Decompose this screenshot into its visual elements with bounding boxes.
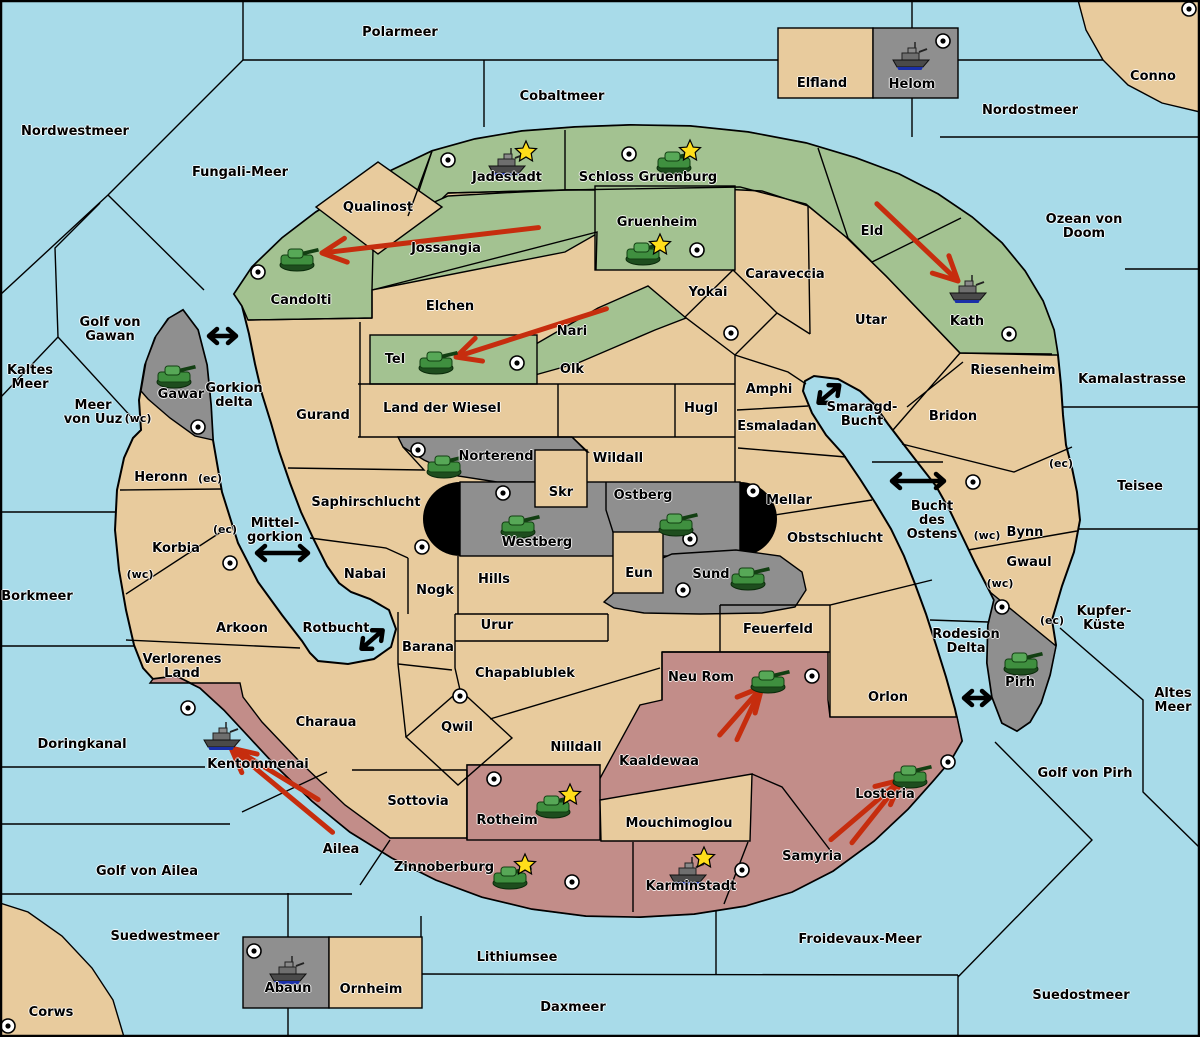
territory-label-esmaladan[interactable]: Esmaladan (737, 420, 817, 434)
map-canvas (0, 0, 1200, 1037)
coast-mark-ec-bynn-north: (ec) (1049, 458, 1073, 470)
territory-label-sottovia[interactable]: Sottovia (387, 795, 448, 809)
link-arrow-bucht-des-ostens (892, 474, 944, 488)
territory-label-losteria[interactable]: Losteria (855, 788, 915, 802)
sea-label-daxmeer: Daxmeer (540, 1001, 606, 1015)
territory-label-abaun[interactable]: Abaun (265, 982, 312, 996)
territory-label-obstschlucht[interactable]: Obstschlucht (787, 532, 883, 546)
coast-mark-ec-gwaul-east: (ec) (1040, 615, 1064, 627)
territory-label-korbia[interactable]: Korbia (152, 542, 200, 556)
sea-label-meer-von-uuz: Meer von Uuz (64, 399, 123, 427)
territory-label-conno[interactable]: Conno (1130, 70, 1176, 84)
city-marker-saphirschlucht (415, 540, 429, 554)
territory-label-mouchimoglou[interactable]: Mouchimoglou (626, 817, 733, 831)
territory-label-yokai[interactable]: Yokai (688, 286, 727, 300)
sea-label-bucht-des-ostens: Bucht des Ostens (907, 500, 958, 542)
city-marker-abaun (247, 944, 261, 958)
city-marker-korbia (223, 556, 237, 570)
territory-label-ornheim[interactable]: Ornheim (340, 983, 403, 997)
territory-label-westberg[interactable]: Westberg (502, 536, 572, 550)
coast-mark-wc-bynn-west: (wc) (974, 530, 1001, 542)
sea-label-suedwestmeer: Suedwestmeer (110, 930, 219, 944)
city-marker-tel (510, 356, 524, 370)
territory-label-nabai[interactable]: Nabai (344, 568, 386, 582)
territory-label-corws[interactable]: Corws (29, 1006, 74, 1020)
city-marker-karminstadt (735, 863, 749, 877)
sea-label-mittelgorkion: Mittel- gorkion (247, 517, 303, 545)
city-marker-kentommenai (181, 701, 195, 715)
territory-label-kaaldewaa[interactable]: Kaaldewaa (619, 755, 699, 769)
territory-label-utar[interactable]: Utar (855, 314, 887, 328)
territory-label-urur[interactable]: Urur (481, 619, 514, 633)
sea-label-smaragd-bucht: Smaragd- Bucht (827, 401, 898, 429)
territory-label-schloss-gruenburg[interactable]: Schloss Gruenburg (579, 171, 717, 185)
sea-label-suedostmeer: Suedostmeer (1032, 989, 1129, 1003)
sea-label-golf-von-ailea: Golf von Ailea (96, 865, 198, 879)
territory-label-mellar[interactable]: Mellar (766, 494, 812, 508)
link-arrow-orlon-pirh (964, 691, 990, 705)
territory-label-zinnoberburg[interactable]: Zinnoberburg (394, 861, 494, 875)
territory-conno-area (1078, 0, 1200, 112)
territory-ornheim-area (329, 937, 422, 1008)
territory-label-barana[interactable]: Barana (402, 641, 454, 655)
city-marker-mellar (746, 484, 760, 498)
sea-label-rodesion-delta: Rodesion Delta (932, 628, 999, 656)
territory-label-wildall[interactable]: Wildall (593, 452, 643, 466)
territory-label-riesenheim[interactable]: Riesenheim (970, 364, 1055, 378)
territory-label-rotheim[interactable]: Rotheim (476, 814, 537, 828)
territory-label-amphi[interactable]: Amphi (746, 383, 793, 397)
city-marker-gawar (191, 420, 205, 434)
territory-label-tel[interactable]: Tel (385, 353, 405, 367)
territory-label-chapablublek[interactable]: Chapablublek (475, 667, 575, 681)
link-arrow-gorkion-delta (209, 329, 236, 343)
territory-label-pirh[interactable]: Pirh (1005, 676, 1035, 690)
territory-label-saphirschlucht[interactable]: Saphirschlucht (311, 496, 420, 510)
territory-label-qualinost[interactable]: Qualinost (343, 201, 413, 215)
territory-label-eld[interactable]: Eld (861, 225, 884, 239)
city-marker-jadestadt (441, 153, 455, 167)
territory-label-karminstadt[interactable]: Karminstadt (646, 880, 737, 894)
sea-label-rotbucht: Rotbucht (303, 622, 370, 636)
territory-label-verlorenes-land[interactable]: Verlorenes Land (142, 653, 221, 681)
city-marker-sund (676, 583, 690, 597)
sea-label-borkmeer: Borkmeer (1, 590, 73, 604)
sea-label-gorkion-delta: Gorkion delta (205, 382, 262, 410)
sea-label-nordostmeer: Nordostmeer (982, 104, 1078, 118)
link-arrow-mittelgorkion (257, 546, 308, 560)
territory-label-arkoon[interactable]: Arkoon (216, 622, 268, 636)
territory-label-gurand[interactable]: Gurand (296, 409, 350, 423)
territory-label-olk[interactable]: Olk (560, 363, 584, 377)
territory-label-land-der-wiesel[interactable]: Land der Wiesel (383, 402, 501, 416)
territory-label-bynn[interactable]: Bynn (1007, 526, 1044, 540)
territory-label-neu-rom[interactable]: Neu Rom (668, 671, 734, 685)
territory-label-sund[interactable]: Sund (692, 568, 729, 582)
territory-label-hills[interactable]: Hills (478, 573, 510, 587)
territory-label-helom[interactable]: Helom (889, 78, 936, 92)
sea-label-teisee: Teisee (1117, 480, 1163, 494)
city-marker-yokai (724, 326, 738, 340)
city-marker-neu-rom (805, 669, 819, 683)
city-marker-losteria (941, 755, 955, 769)
territory-label-ailea[interactable]: Ailea (323, 843, 360, 857)
sea-label-froidevaux-meer: Froidevaux-Meer (798, 933, 921, 947)
sea-label-ozean-von-doom: Ozean von Doom (1026, 213, 1142, 241)
city-marker-candolti (251, 265, 265, 279)
city-marker-bynn (966, 475, 980, 489)
territory-label-nilldall[interactable]: Nilldall (550, 741, 601, 755)
territory-label-charaua[interactable]: Charaua (296, 716, 357, 730)
territory-label-candolti[interactable]: Candolti (271, 294, 332, 308)
territory-label-qwil[interactable]: Qwil (441, 721, 473, 735)
territory-label-gwaul[interactable]: Gwaul (1006, 556, 1051, 570)
coast-mark-ec-korbia-east: (ec) (213, 524, 237, 536)
sea-label-nordwestmeer: Nordwestmeer (21, 125, 129, 139)
territory-label-elchen[interactable]: Elchen (426, 300, 474, 314)
city-marker-conno (1182, 2, 1196, 16)
territory-label-jossangia[interactable]: Jossangia (411, 242, 481, 256)
sea-label-lithiumsee: Lithiumsee (477, 951, 558, 965)
wargame-map: Polarmeer Cobaltmeer Nordostmeer Nordwes… (0, 0, 1200, 1037)
sea-label-fungali-meer: Fungali-Meer (192, 166, 288, 180)
territory-label-heronn[interactable]: Heronn (134, 471, 188, 485)
city-marker-rotheim (487, 772, 501, 786)
city-marker-westberg (496, 486, 510, 500)
territory-eun-area (613, 532, 663, 593)
sea-label-cobaltmeer: Cobaltmeer (520, 90, 605, 104)
territory-label-gruenheim[interactable]: Gruenheim (617, 216, 697, 230)
territory-label-norterend[interactable]: Norterend (458, 450, 533, 464)
coast-mark-ec-heronn-east: (ec) (198, 473, 222, 485)
sea-label-golf-von-gawan: Golf von Gawan (80, 316, 141, 344)
territory-label-jadestadt[interactable]: Jadestadt (472, 171, 542, 185)
territory-label-samyria[interactable]: Samyria (782, 850, 842, 864)
coast-mark-wc-korbia-west: (wc) (127, 569, 154, 581)
city-marker-schloss-gruenburg (622, 147, 636, 161)
city-marker-norterend (411, 443, 425, 457)
territory-label-hugl[interactable]: Hugl (684, 402, 718, 416)
city-marker-corws (1, 1019, 15, 1033)
sea-label-kupfer-kueste: Kupfer- Küste (1077, 605, 1132, 633)
city-marker-qwil (453, 689, 467, 703)
sea-label-polarmeer: Polarmeer (362, 26, 438, 40)
city-marker-pirh (995, 600, 1009, 614)
city-marker-kath (1002, 327, 1016, 341)
city-marker-zinnoberburg (565, 875, 579, 889)
coast-mark-wc-heronn-west: (wc) (125, 413, 152, 425)
territory-label-orlon[interactable]: Orlon (868, 691, 908, 705)
sea-label-golf-von-pirh: Golf von Pirh (1037, 767, 1132, 781)
sea-label-kaltes-meer: Kaltes Meer (7, 364, 53, 392)
territory-label-kath[interactable]: Kath (950, 315, 984, 329)
sea-label-kamalastrasse: Kamalastrasse (1078, 373, 1186, 387)
coast-mark-wc-gwaul-south: (wc) (987, 578, 1014, 590)
territory-label-kentommenai[interactable]: Kentommenai (207, 758, 308, 772)
sea-label-doringkanal: Doringkanal (37, 738, 126, 752)
territory-label-ostberg[interactable]: Ostberg (614, 489, 673, 503)
territory-label-nari[interactable]: Nari (557, 325, 588, 339)
city-marker-gruenheim (690, 243, 704, 257)
city-marker-helom (936, 34, 950, 48)
sea-label-altes-meer: Altes Meer (1154, 687, 1191, 715)
territory-label-eun[interactable]: Eun (625, 567, 652, 581)
ship-icon-kentommenai (204, 722, 240, 750)
territory-label-nogk[interactable]: Nogk (416, 584, 454, 598)
territory-label-elfland[interactable]: Elfland (797, 77, 847, 91)
territory-label-feuerfeld[interactable]: Feuerfeld (743, 623, 813, 637)
territory-label-bridon[interactable]: Bridon (929, 410, 977, 424)
territory-label-skr[interactable]: Skr (549, 486, 573, 500)
territory-label-gawar[interactable]: Gawar (158, 388, 205, 402)
territory-label-caraveccia[interactable]: Caraveccia (745, 268, 824, 282)
